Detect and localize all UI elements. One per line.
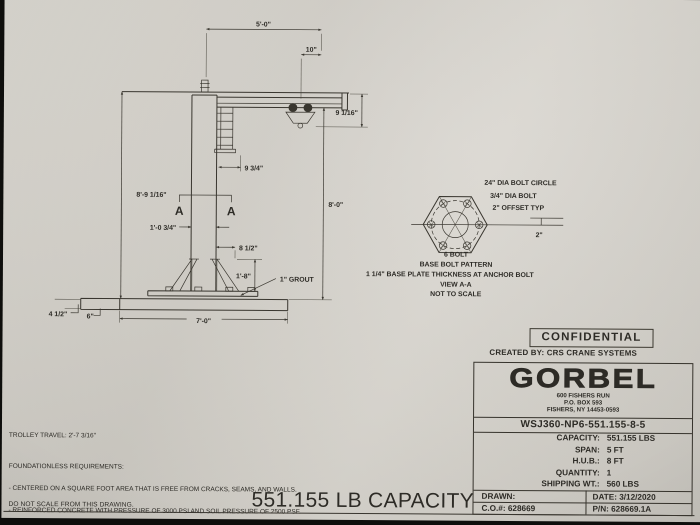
detail-caption-view: VIEW A-A <box>440 282 472 289</box>
confidential-stamp: CONFIDENTIAL <box>529 328 653 348</box>
photo-background: 5'-0" 10" 9 1/16" 9 3/4" 8'-9 1/16" 8'-0… <box>0 0 700 525</box>
dim-overall-height-label: 8'-9 1/16" <box>136 192 166 199</box>
section-marker-a-left: A <box>175 204 184 218</box>
spec-value: 8 FT <box>607 456 624 468</box>
spec-label: H.U.B.: <box>474 455 600 467</box>
dimension-lines <box>71 28 369 324</box>
dim-slab-edge-label: 4 1/2" <box>49 311 68 318</box>
dim-saddle-label: 9 3/4" <box>245 165 264 172</box>
dim-slab-step-label: 6" <box>87 313 94 320</box>
spec-table: CAPACITY:551.155 LBS SPAN:5 FT H.U.B.:8 … <box>474 432 692 491</box>
detail-caption-plate: 1 1/4" BASE PLATE THICKNESS AT ANCHOR BO… <box>366 271 535 279</box>
section-marker-a-right: A <box>227 204 236 218</box>
dim-boom-tip-label: 10" <box>306 47 317 54</box>
spec-label: SPAN: <box>474 443 600 455</box>
boom <box>122 92 349 110</box>
spec-value: 1 <box>607 467 612 479</box>
spec-value: 560 LBS <box>607 479 639 491</box>
dimension-labels: 5'-0" 10" 9 1/16" 9 3/4" 8'-9 1/16" 8'-0… <box>49 20 359 326</box>
model-number: WSJ360-NP6-551.155-8-5 <box>474 418 692 432</box>
bolt-dia-note: 3/4" DIA BOLT <box>490 193 537 200</box>
dim-mast-base-label: 1'-0 3/4" <box>150 225 176 232</box>
dim-span-label: 5'-0" <box>256 21 271 28</box>
spec-value: 551.155 LBS <box>607 433 655 445</box>
do-not-scale-note: DO NOT SCALE FROM THIS DRAWING. <box>8 501 133 509</box>
trolley-hoist <box>286 103 315 128</box>
bolt-circle-note: 24" DIA BOLT CIRCLE <box>484 180 557 187</box>
gorbel-logo: GORBEL <box>457 366 700 393</box>
trolley-travel-note: TROLLEY TRAVEL: 2'-7 3/16" <box>9 432 303 441</box>
foundationless-heading: FOUNDATIONLESS REQUIREMENTS: <box>9 463 303 472</box>
dim-under-boom-label: 8'-0" <box>328 202 343 209</box>
spec-value: 5 FT <box>607 444 624 456</box>
detail-caption-bolt-count: 6 BOLT <box>444 252 469 259</box>
detail-caption-scale: NOT TO SCALE <box>430 291 482 298</box>
grout-label: 1" GROUT <box>280 277 315 284</box>
dim-gusset-height-label: 1'-8" <box>236 273 251 280</box>
mast-ladder <box>215 107 236 153</box>
date-cell: DATE: 3/12/2020 <box>586 491 656 503</box>
address-line-3: FISHERS, NY 14453-0593 <box>474 406 692 414</box>
capacity-title: 551.155 LB CAPACITY <box>251 488 474 513</box>
dim-head-label: 9 1/16" <box>335 110 357 117</box>
dim-gusset-spread-label: 8 1/2" <box>239 245 258 252</box>
spec-label: QUANTITY: <box>474 467 600 479</box>
divider <box>585 490 586 514</box>
company-address: 600 FISHERS RUN P.O. BOX 593 FISHERS, NY… <box>474 392 692 414</box>
drawn-cell: DRAWN: <box>474 490 586 502</box>
offset-note: 2" OFFSET TYP <box>493 205 545 212</box>
detail-caption-pattern: BASE BOLT PATTERN <box>420 261 493 268</box>
bolt-pattern-detail: 24" DIA BOLT CIRCLE 3/4" DIA BOLT 2" OFF… <box>366 179 564 299</box>
base-gussets <box>170 259 239 291</box>
spec-label: SHIPPING WT.: <box>474 478 600 490</box>
foundation-slab <box>55 298 288 310</box>
offset-dim-label: 2" <box>536 232 543 239</box>
title-block: GORBEL 600 FISHERS RUN P.O. BOX 593 FISH… <box>472 362 693 516</box>
dim-foundation-label: 7'-0" <box>196 318 211 325</box>
spec-label: CAPACITY: <box>474 432 600 444</box>
created-by-line: CREATED BY: CRS CRANE SYSTEMS <box>489 348 637 358</box>
drawing-sheet: 5'-0" 10" 9 1/16" 9 3/4" 8'-9 1/16" 8'-0… <box>1 0 700 522</box>
